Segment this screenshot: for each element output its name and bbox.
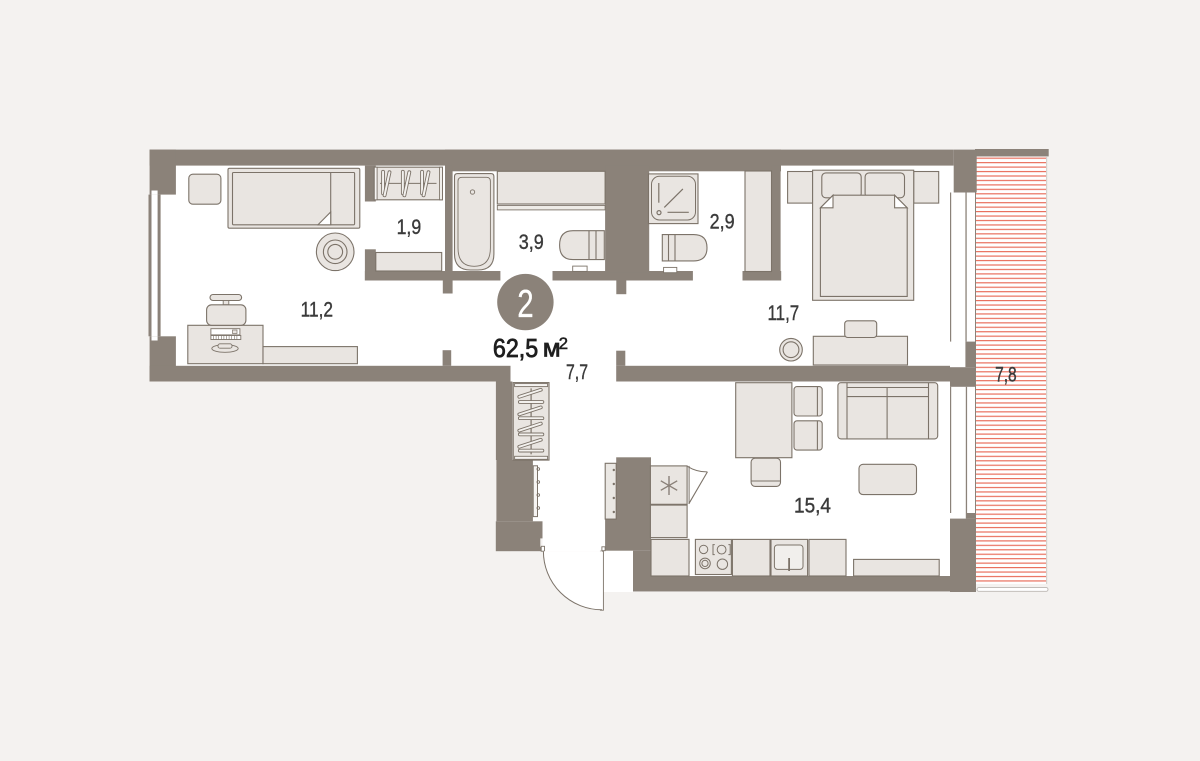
svg-text:11,2: 11,2 bbox=[301, 299, 334, 322]
svg-text:2,9: 2,9 bbox=[710, 211, 735, 234]
svg-text:15,4: 15,4 bbox=[794, 495, 831, 518]
svg-text:7,7: 7,7 bbox=[566, 361, 588, 384]
svg-text:3,9: 3,9 bbox=[519, 231, 544, 254]
svg-text:1,9: 1,9 bbox=[397, 216, 422, 239]
svg-text:2: 2 bbox=[559, 334, 568, 353]
svg-text:7,8: 7,8 bbox=[995, 363, 1017, 386]
svg-text:62,5: 62,5 bbox=[493, 333, 538, 363]
svg-text:2: 2 bbox=[517, 283, 533, 326]
svg-text:11,7: 11,7 bbox=[768, 302, 800, 325]
